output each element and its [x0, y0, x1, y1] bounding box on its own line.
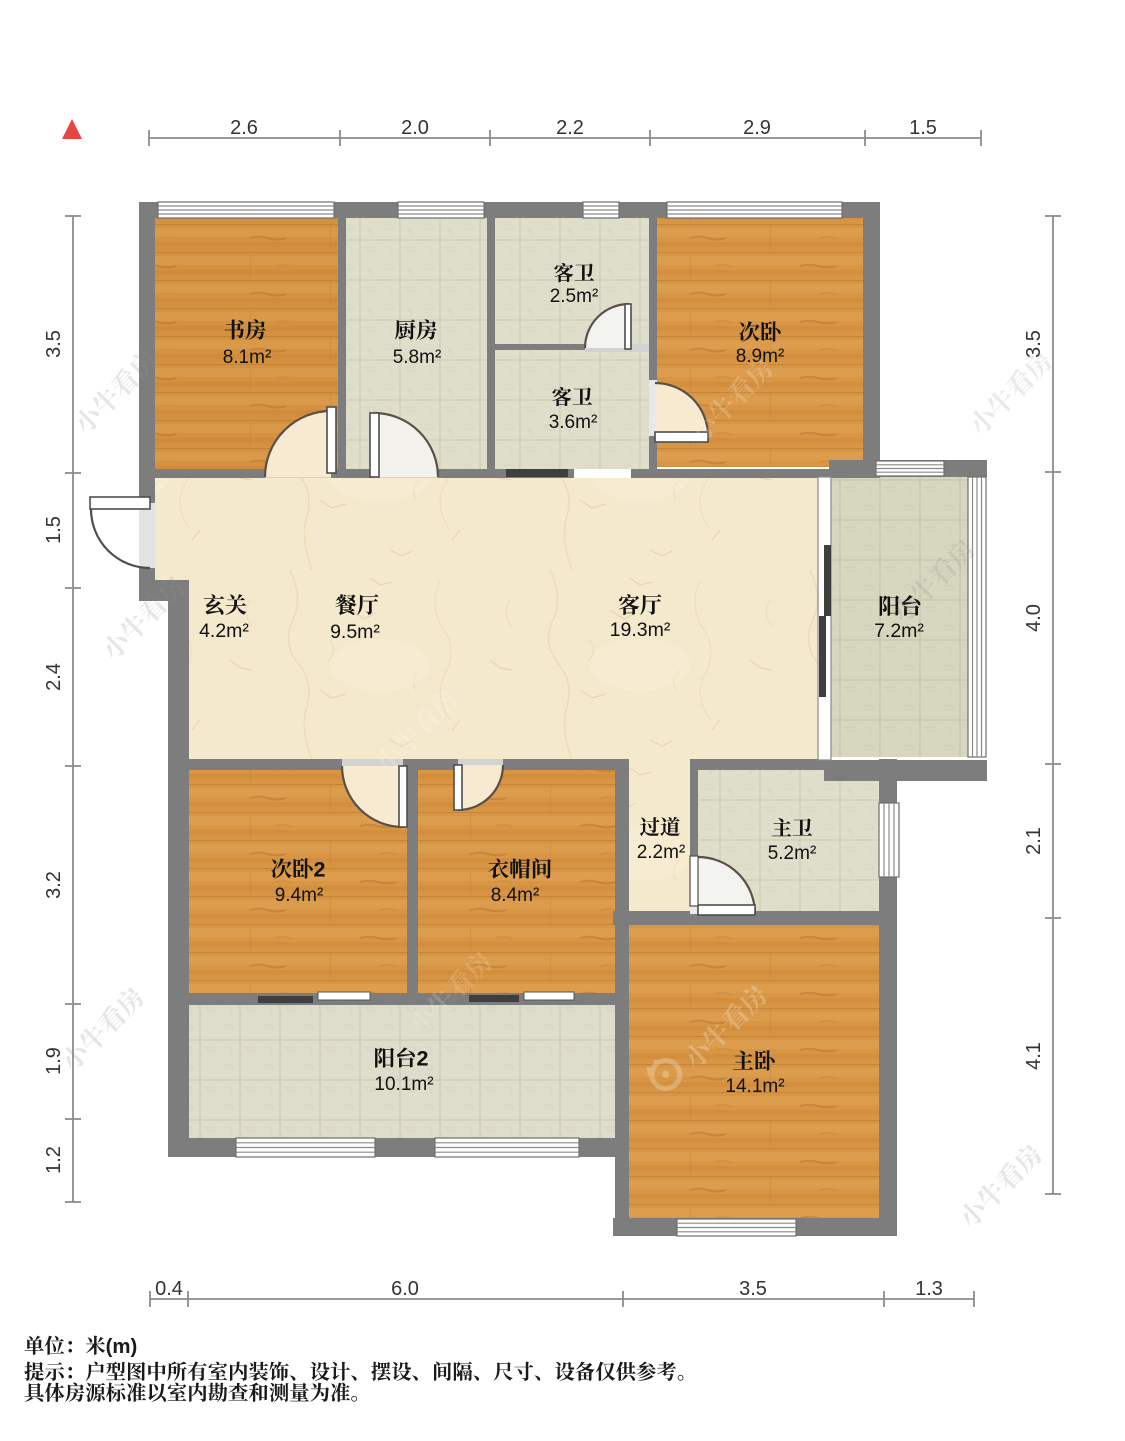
- svg-text:2.0: 2.0: [401, 117, 429, 139]
- svg-text:3.2: 3.2: [43, 871, 65, 899]
- svg-text:1.9: 1.9: [43, 1047, 65, 1075]
- svg-text:4.0: 4.0: [1023, 604, 1045, 632]
- svg-text:14.1m²: 14.1m²: [725, 1076, 784, 1097]
- svg-text:3.5: 3.5: [1023, 330, 1045, 358]
- svg-text:2.5m²: 2.5m²: [550, 286, 599, 307]
- svg-text:8.9m²: 8.9m²: [736, 346, 785, 367]
- svg-text:2.2m²: 2.2m²: [637, 842, 686, 863]
- svg-text:2.9: 2.9: [743, 117, 771, 139]
- svg-text:2.6: 2.6: [230, 117, 258, 139]
- svg-text:5.2m²: 5.2m²: [768, 843, 817, 864]
- svg-text:10.1m²: 10.1m²: [374, 1074, 433, 1095]
- svg-text:8.1m²: 8.1m²: [223, 347, 272, 368]
- svg-text:1.3: 1.3: [915, 1278, 943, 1300]
- svg-text:2: 2: [417, 1047, 429, 1071]
- svg-text:7.2m²: 7.2m²: [874, 620, 924, 642]
- svg-text:5.8m²: 5.8m²: [393, 347, 442, 368]
- svg-text:2.4: 2.4: [43, 663, 65, 691]
- svg-text:1.5: 1.5: [43, 516, 65, 544]
- svg-text:4.2m²: 4.2m²: [199, 620, 249, 642]
- svg-text:2.2: 2.2: [556, 117, 584, 139]
- svg-text:19.3m²: 19.3m²: [610, 619, 671, 641]
- svg-text:1.2: 1.2: [43, 1146, 65, 1174]
- svg-text:0.4: 0.4: [155, 1278, 183, 1300]
- svg-text:9.5m²: 9.5m²: [330, 621, 380, 643]
- svg-text:6.0: 6.0: [391, 1278, 419, 1300]
- svg-text:8.4m²: 8.4m²: [491, 885, 540, 906]
- svg-text:4.1: 4.1: [1023, 1042, 1045, 1070]
- svg-text:3.5: 3.5: [739, 1278, 767, 1300]
- svg-text:2: 2: [314, 858, 326, 882]
- svg-text:(m): (m): [106, 1336, 138, 1358]
- svg-text:1.5: 1.5: [909, 117, 937, 139]
- svg-text:3.5: 3.5: [43, 330, 65, 358]
- svg-text:9.4m²: 9.4m²: [275, 885, 324, 906]
- svg-text:3.6m²: 3.6m²: [549, 412, 598, 433]
- svg-text:2.1: 2.1: [1023, 827, 1045, 855]
